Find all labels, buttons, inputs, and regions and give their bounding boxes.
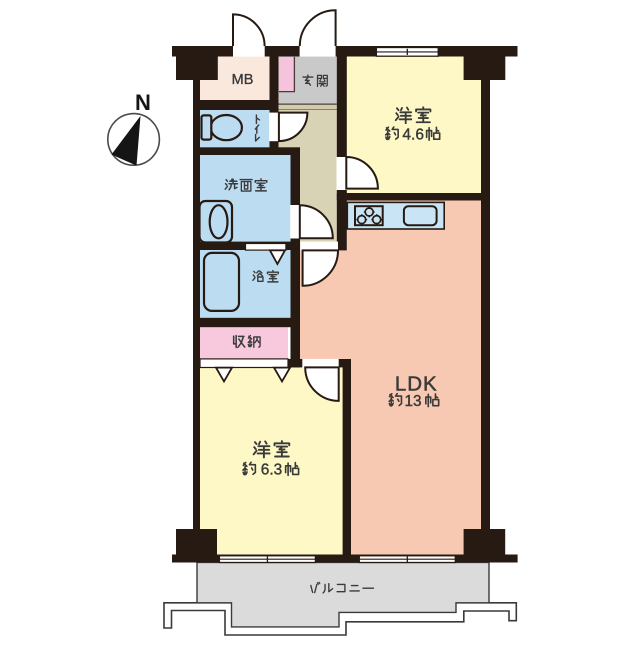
svg-text:4.6: 4.6 (402, 126, 424, 143)
svg-text:6.3: 6.3 (261, 462, 282, 479)
svg-text:13: 13 (404, 393, 421, 410)
svg-text:N: N (135, 90, 151, 115)
svg-text:MB: MB (232, 72, 254, 88)
